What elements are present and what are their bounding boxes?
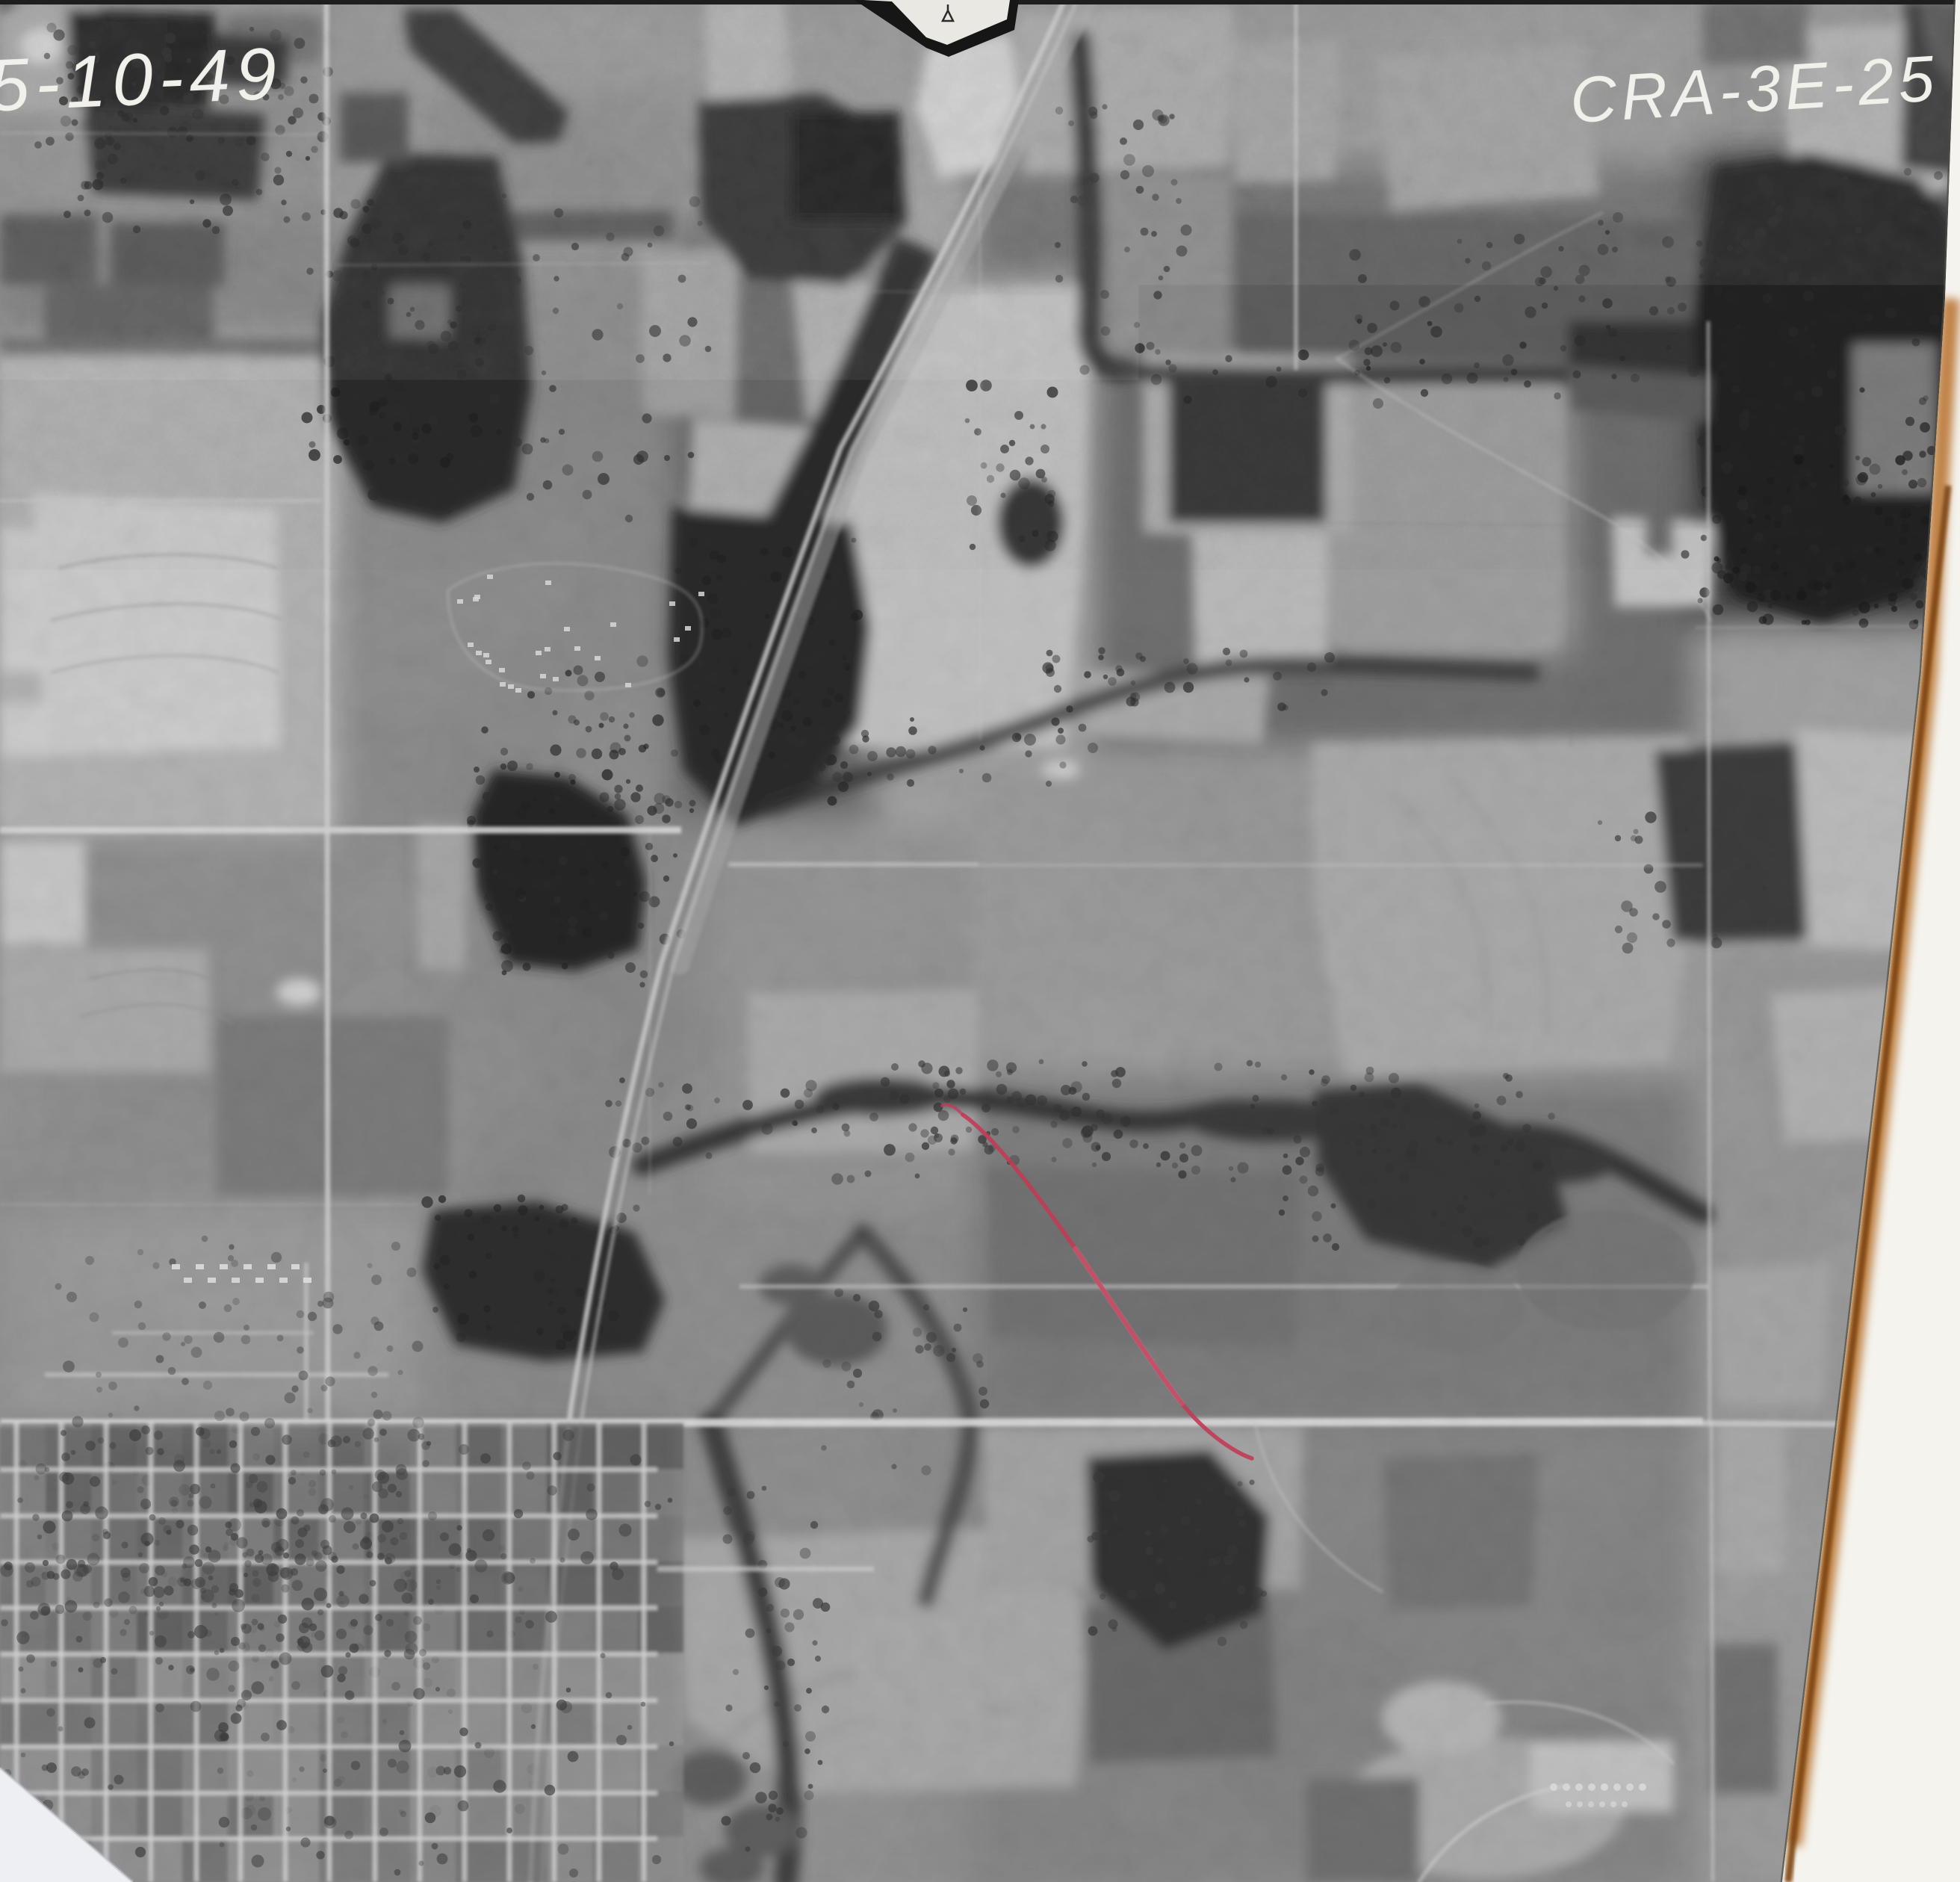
svg-text:5-10-49: 5-10-49 — [0, 32, 284, 127]
